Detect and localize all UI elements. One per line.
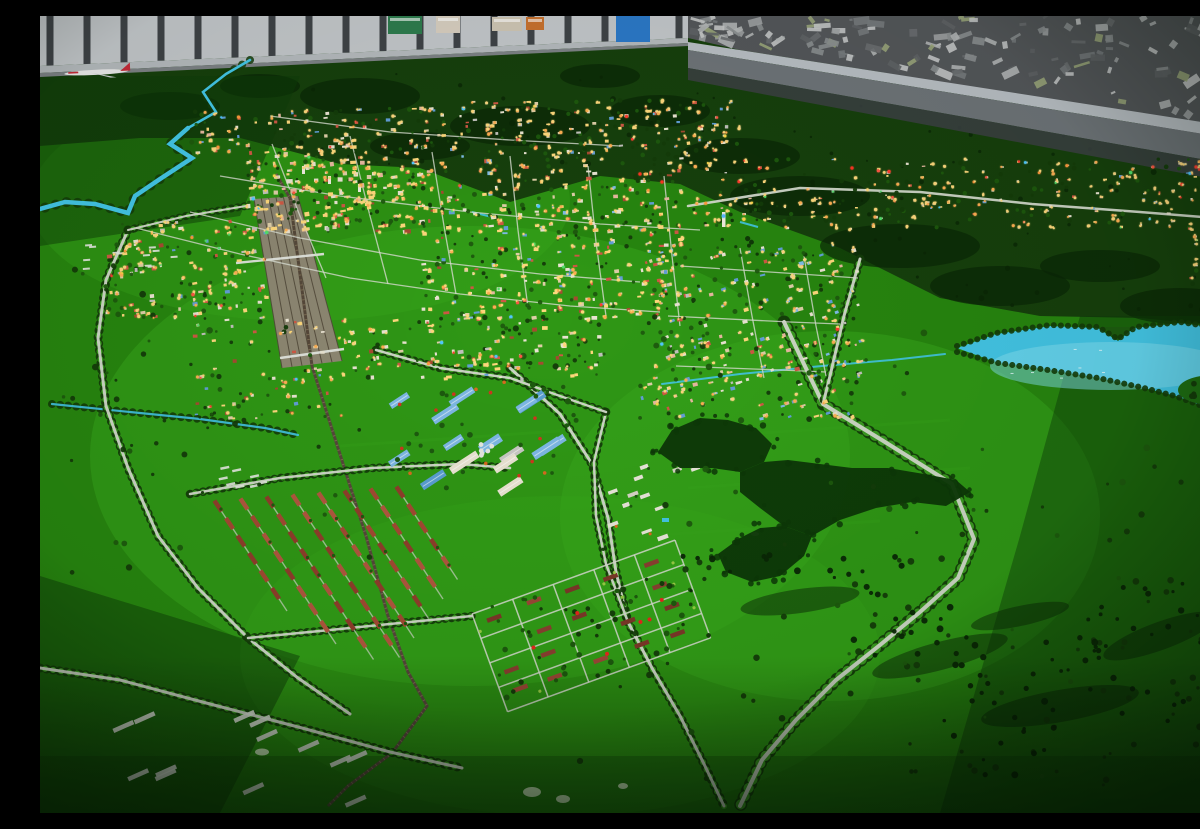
photo-bottom-shadow bbox=[40, 656, 1200, 813]
model-scene bbox=[40, 16, 1200, 813]
scale-model-photo bbox=[40, 16, 1200, 813]
